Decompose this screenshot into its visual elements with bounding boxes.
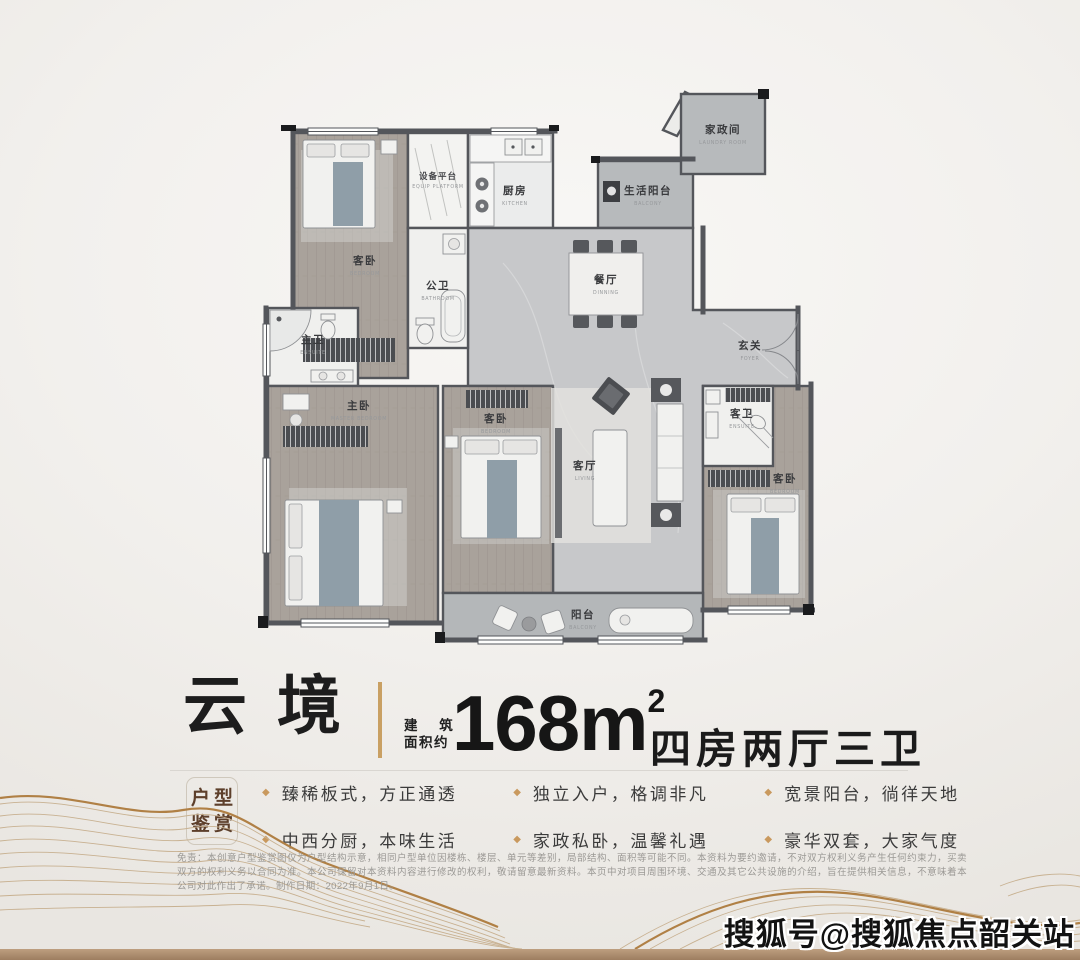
diamond-bullet-icon: ◆	[764, 787, 772, 798]
label-dining: 餐厅	[593, 273, 618, 286]
diamond-bullet-icon: ◆	[764, 834, 772, 845]
feature-item: ◆中西分厨，本味生活	[262, 827, 457, 852]
feature-item: ◆家政私卧，温馨礼遇	[513, 827, 708, 852]
area-value: 168m2	[452, 684, 665, 762]
svg-text:ENSUITE: ENSUITE	[300, 350, 325, 356]
svg-text:ENSUITE: ENSUITE	[729, 424, 754, 430]
svg-text:BALCONY: BALCONY	[569, 625, 597, 631]
label-service-balcony: 生活阳台	[624, 184, 672, 197]
label-master-ensuite: 主卫	[301, 333, 325, 346]
layout-description: 四房两厅三卫	[650, 715, 926, 775]
square-superscript: 2	[648, 683, 666, 719]
diamond-bullet-icon: ◆	[513, 834, 521, 845]
svg-text:EQUIP PLATFORM: EQUIP PLATFORM	[412, 184, 463, 190]
diamond-bullet-icon: ◆	[262, 787, 270, 798]
label-guest-ensuite: 客卫	[729, 407, 754, 420]
feature-item: ◆独立入户，格调非凡	[513, 780, 708, 805]
svg-text:KITCHEN: KITCHEN	[502, 201, 528, 207]
water-heater	[603, 181, 620, 202]
label-kitchen: 厨房	[503, 184, 527, 197]
label-foyer: 玄关	[738, 339, 762, 352]
feature-item: ◆宽景阳台，徜徉天地	[764, 780, 959, 805]
badge-line2: 鉴赏	[187, 811, 237, 837]
sohu-watermark: 搜狐号@搜狐焦点韶关站	[724, 909, 1075, 954]
label-bedroom-topleft: 客卧	[352, 254, 377, 267]
svg-text:LAUNDRY ROOM: LAUNDRY ROOM	[699, 140, 747, 146]
svg-text:FOYER: FOYER	[740, 356, 759, 362]
diamond-bullet-icon: ◆	[513, 787, 521, 798]
floor-plan: 客卧 BEDROOM 设备平台 EQUIP PLATFORM 厨房 KITCHE…	[253, 78, 815, 650]
label-laundry: 家政间	[705, 123, 741, 136]
svg-text:BATHROOM: BATHROOM	[421, 296, 454, 302]
badge-line1: 户型	[187, 785, 237, 811]
label-bathroom: 公卫	[426, 280, 450, 292]
label-equipment-platform: 设备平台	[419, 171, 457, 182]
apartment-name: 云境	[183, 672, 371, 742]
label-living: 客厅	[572, 459, 597, 472]
label-balcony: 阳台	[571, 608, 595, 621]
svg-text:BEDROOM: BEDROOM	[350, 271, 380, 277]
appreciation-badge: 户型 鉴赏	[186, 777, 238, 845]
label-bedroom-middle: 客卧	[483, 412, 508, 425]
label-master-bedroom: 主卧	[347, 399, 371, 412]
diamond-bullet-icon: ◆	[262, 834, 270, 845]
svg-text:MASTER BEDROOM: MASTER BEDROOM	[331, 416, 387, 422]
label-bedroom-right: 客卧	[772, 472, 797, 485]
svg-text:LIVING: LIVING	[575, 476, 595, 482]
svg-text:BEDROOM: BEDROOM	[770, 489, 800, 495]
svg-text:BEDROOM: BEDROOM	[481, 429, 511, 435]
gold-divider	[378, 682, 382, 758]
feature-item: ◆豪华双套，大家气度	[764, 827, 959, 852]
svg-text:DINNING: DINNING	[593, 290, 619, 296]
svg-text:BALCONY: BALCONY	[634, 201, 662, 207]
furniture-living	[551, 376, 683, 543]
feature-item: ◆臻稀板式，方正通透	[262, 780, 457, 805]
disclaimer-text: 免责：本创意户型鉴赏图仅为户型结构示意，相同户型单位因楼栋、楼层、单元等差别，局…	[177, 852, 967, 893]
feature-list: ◆臻稀板式，方正通透 ◆中西分厨，本味生活 ◆独立入户，格调非凡 ◆家政私卧，温…	[262, 780, 960, 852]
title-rule	[170, 770, 908, 771]
poster-page: { "title": { "name": "云境", "area_prefix_…	[0, 0, 1080, 960]
